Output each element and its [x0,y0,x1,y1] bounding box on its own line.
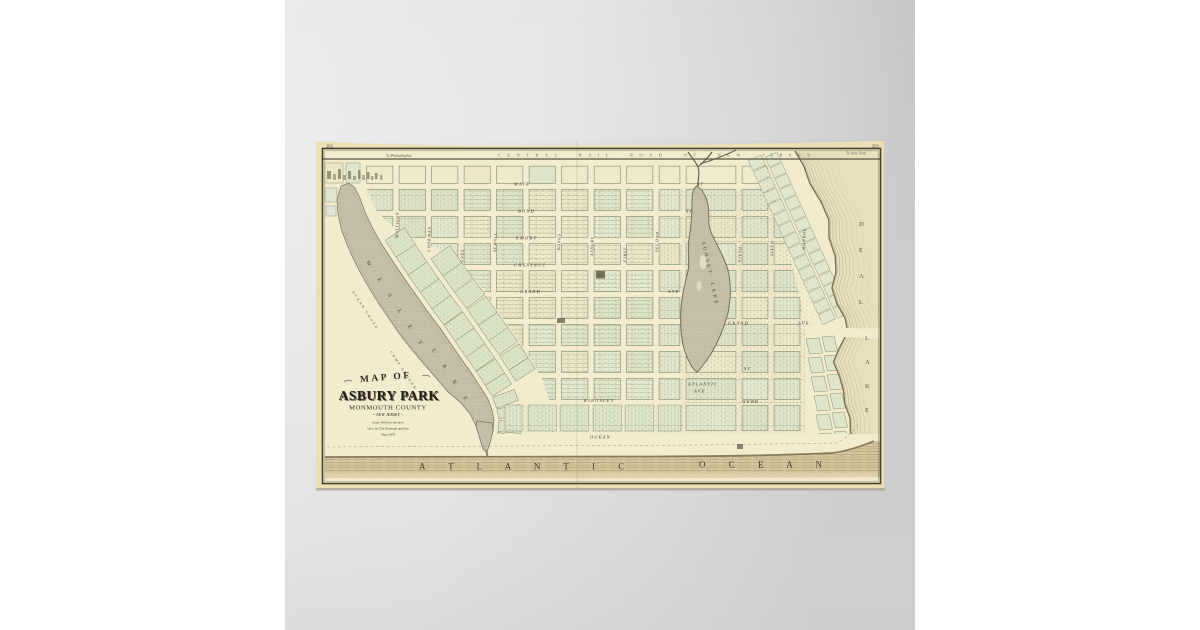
svg-text:BANGS: BANGS [556,233,562,250]
svg-text:ATLANTIC: ATLANTIC [687,382,718,387]
svg-text:ST: ST [686,208,693,213]
svg-text:K: K [865,383,870,390]
svg-text:~ NEW JERSEY ~: ~ NEW JERSEY ~ [373,412,404,417]
svg-text:O C E A N: O C E A N [699,460,833,470]
svg-text:A: A [859,273,864,280]
svg-text:GRAND: GRAND [520,289,541,294]
svg-text:COOKMAN: COOKMAN [426,226,432,252]
svg-text:A T L A N T I C: A T L A N T I C [419,462,635,472]
svg-text:May 1878: May 1878 [380,433,395,437]
svg-text:MONMOUTH COUNTY: MONMOUTH COUNTY [349,405,427,412]
svg-text:MONROE: MONROE [801,228,807,251]
svg-text:FIFTH: FIFTH [737,246,743,263]
svg-text:ST: ST [697,181,704,186]
svg-text:AVE.: AVE. [797,321,812,326]
svg-text:GRAND: GRAND [728,321,749,326]
svg-text:SIXTH: SIXTH [769,240,775,256]
svg-text:A: A [865,359,870,366]
svg-text:MATTISON: MATTISON [394,212,400,239]
svg-text:CHESTNUT: CHESTNUT [514,262,546,267]
svg-text:KINGSLEY: KINGSLEY [583,398,615,403]
svg-text:E: E [859,247,863,254]
svg-text:BOND: BOND [518,208,535,213]
svg-text:Scale 300 ft to the inch: Scale 300 ft to the inch [372,421,403,425]
svg-text:LAKE: LAKE [459,248,464,263]
svg-text:FIRST: FIRST [622,247,628,263]
svg-text:L: L [859,299,863,306]
svg-text:D: D [859,221,864,228]
svg-text:MAIN: MAIN [513,181,530,186]
svg-text:EMORY: EMORY [515,235,537,240]
svg-text:SEWALL: SEWALL [492,232,498,252]
svg-text:E: E [865,407,869,414]
svg-text:AVE: AVE [667,289,680,294]
svg-text:ASBURY: ASBURY [589,236,595,257]
svg-text:ASBURY PARK: ASBURY PARK [339,388,440,403]
svg-text:SECOND: SECOND [654,231,660,252]
svg-text:Surv. by T.B. Kennedy and Son: Surv. by T.B. Kennedy and Son [367,427,409,431]
svg-text:AVE.: AVE. [693,389,708,394]
svg-text:WEBB: WEBB [742,399,759,404]
svg-text:ST: ST [744,366,751,371]
svg-text:L: L [865,335,869,342]
svg-text:OCEAN: OCEAN [590,435,611,440]
